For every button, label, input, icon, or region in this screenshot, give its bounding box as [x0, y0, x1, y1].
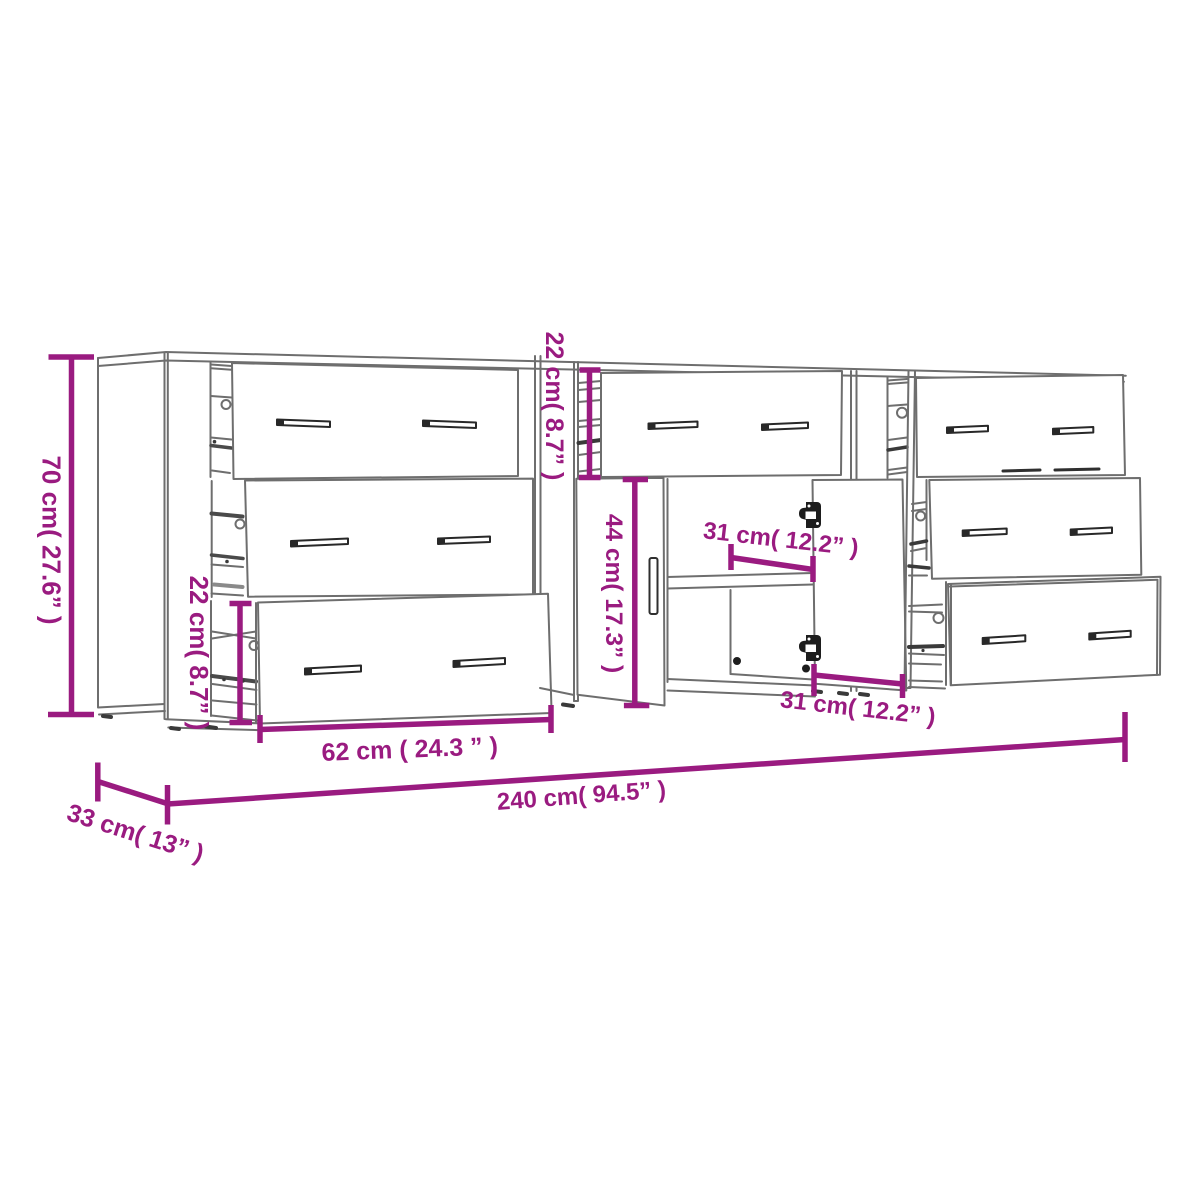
svg-text:22 cm( 8.7” ): 22 cm( 8.7” )	[184, 576, 214, 731]
svg-text:44 cm( 17.3” ): 44 cm( 17.3” )	[600, 514, 627, 673]
svg-text:22 cm( 8.7” ): 22 cm( 8.7” )	[540, 332, 568, 481]
svg-text:70 cm( 27.6” ): 70 cm( 27.6” )	[37, 455, 67, 624]
